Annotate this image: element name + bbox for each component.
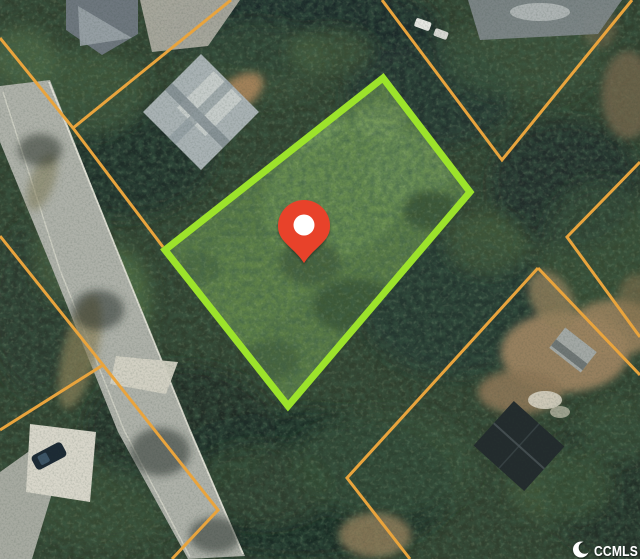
watermark-label: CCMLS	[594, 544, 638, 559]
crescent-c-logo-icon	[571, 540, 590, 559]
aerial-photo[interactable]: CCMLS	[0, 0, 640, 559]
listing-photo-aerial-map[interactable]: CCMLS	[0, 0, 640, 559]
pin-dot	[294, 215, 315, 236]
photo-grain	[0, 0, 640, 559]
